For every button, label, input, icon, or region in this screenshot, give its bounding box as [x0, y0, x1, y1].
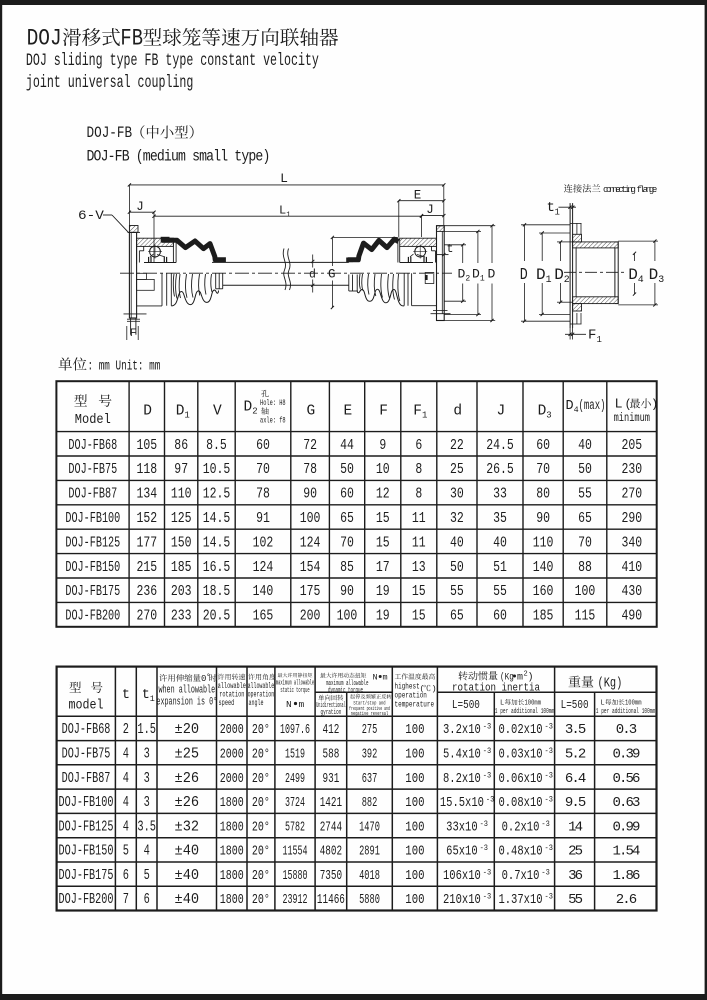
svg-text:1519: 1519 — [285, 747, 305, 763]
svg-text:E: E — [414, 188, 422, 202]
svg-text:20°: 20° — [252, 747, 270, 763]
svg-text:4: 4 — [123, 795, 129, 811]
svg-text:200: 200 — [300, 608, 321, 625]
svg-text:±26: ±26 — [175, 795, 200, 811]
svg-text:185: 185 — [171, 559, 192, 576]
svg-text:L=500: L=500 — [561, 699, 589, 712]
svg-text:97: 97 — [174, 461, 188, 478]
svg-text:20°: 20° — [252, 819, 270, 835]
svg-text:3.2x10: 3.2x10 — [443, 722, 481, 738]
svg-text:11554: 11554 — [283, 844, 308, 860]
svg-text:-3: -3 — [483, 892, 491, 902]
svg-text:11466: 11466 — [317, 892, 345, 908]
svg-text:9.5: 9.5 — [565, 795, 586, 811]
svg-text:30: 30 — [450, 486, 464, 503]
svg-text:60: 60 — [493, 608, 507, 625]
svg-text:51: 51 — [493, 559, 507, 576]
svg-text:negative reversal: negative reversal — [351, 710, 389, 717]
svg-text:11: 11 — [412, 510, 426, 527]
svg-text:L: L — [615, 398, 623, 413]
svg-text:-3: -3 — [545, 722, 553, 732]
svg-text:100: 100 — [405, 844, 424, 860]
svg-text:0.2x10: 0.2x10 — [502, 819, 540, 835]
svg-text:124: 124 — [300, 534, 321, 551]
svg-text:DOJ-FB150: DOJ-FB150 — [65, 559, 120, 576]
svg-text:G: G — [328, 268, 336, 282]
svg-text:36: 36 — [568, 868, 583, 884]
svg-text:55: 55 — [568, 892, 583, 908]
svg-text:speed: speed — [219, 699, 235, 708]
svg-text:3.5: 3.5 — [565, 722, 586, 738]
svg-text:160: 160 — [533, 583, 554, 600]
svg-text:412: 412 — [323, 722, 340, 738]
svg-text:50: 50 — [340, 461, 354, 478]
svg-text:8.5: 8.5 — [206, 437, 227, 454]
svg-text:°: ° — [206, 673, 211, 682]
svg-text:(max): (max) — [579, 399, 606, 414]
svg-text:rotation inertia: rotation inertia — [452, 683, 540, 695]
svg-text:152: 152 — [136, 510, 157, 527]
svg-text:44: 44 — [340, 437, 354, 454]
svg-text:270: 270 — [621, 486, 642, 503]
svg-text:588: 588 — [323, 747, 340, 763]
svg-text:105: 105 — [136, 437, 157, 454]
svg-text:E: E — [343, 404, 351, 420]
svg-text:dynamic torque: dynamic torque — [328, 687, 363, 695]
svg-text:100: 100 — [405, 771, 424, 787]
svg-text:F: F — [588, 328, 596, 344]
svg-text:-3: -3 — [545, 746, 553, 756]
svg-text:60: 60 — [256, 437, 270, 454]
svg-text:1800: 1800 — [220, 844, 244, 860]
svg-text:14: 14 — [568, 819, 583, 835]
svg-text:3724: 3724 — [285, 795, 305, 811]
svg-text:-3: -3 — [486, 795, 494, 805]
svg-text:m: m — [383, 673, 388, 683]
svg-text:DOJ sliding type FB type const: DOJ sliding type FB type constant veloci… — [26, 51, 319, 71]
svg-text:±40: ±40 — [175, 868, 200, 884]
svg-text:Model: Model — [75, 412, 111, 428]
svg-text:9: 9 — [379, 437, 386, 454]
svg-text:88: 88 — [578, 559, 592, 576]
svg-text:±20: ±20 — [175, 722, 200, 738]
svg-text:L: L — [280, 171, 288, 186]
svg-text:0.99: 0.99 — [612, 819, 640, 835]
svg-text:100mm: 100mm — [625, 700, 642, 708]
svg-text:D: D — [143, 404, 151, 420]
svg-text:177: 177 — [136, 534, 157, 551]
svg-text:430: 430 — [621, 583, 642, 600]
svg-text:1.5: 1.5 — [137, 722, 156, 738]
svg-text:8.2x10: 8.2x10 — [443, 771, 481, 787]
svg-text:d: d — [309, 269, 316, 282]
svg-text:72: 72 — [303, 437, 317, 454]
svg-text:5.2: 5.2 — [565, 747, 586, 763]
svg-text:4: 4 — [123, 819, 129, 835]
svg-text:33: 33 — [493, 486, 507, 503]
svg-text:-3: -3 — [483, 770, 491, 780]
svg-text:65: 65 — [450, 608, 464, 625]
svg-text:1 per additional 100mm: 1 per additional 100mm — [596, 708, 655, 716]
svg-text:8: 8 — [415, 486, 422, 503]
svg-text:14.5: 14.5 — [203, 534, 231, 551]
svg-text:175: 175 — [300, 583, 321, 600]
svg-text:N: N — [373, 673, 378, 683]
svg-text:0.02x10: 0.02x10 — [498, 722, 542, 738]
svg-text:L: L — [500, 700, 504, 708]
svg-text:11: 11 — [412, 534, 426, 551]
svg-text:60: 60 — [340, 486, 354, 503]
svg-text:DOJ-FB75: DOJ-FB75 — [68, 461, 117, 478]
svg-text:1421: 1421 — [320, 795, 342, 811]
svg-text:DOJ-FB87: DOJ-FB87 — [62, 771, 111, 787]
svg-text:154: 154 — [300, 559, 321, 576]
svg-text:DOJ-FB200: DOJ-FB200 — [59, 892, 114, 908]
svg-text:65x10: 65x10 — [446, 844, 478, 860]
svg-text:233: 233 — [171, 608, 192, 625]
svg-text:100: 100 — [575, 583, 596, 600]
svg-text:15: 15 — [376, 510, 390, 527]
svg-text:1.37x10: 1.37x10 — [498, 892, 542, 908]
svg-text:215: 215 — [136, 559, 157, 576]
svg-text:DOJ-FB100: DOJ-FB100 — [59, 795, 114, 811]
svg-text:D: D — [520, 265, 528, 284]
svg-text:DOJ-FB150: DOJ-FB150 — [59, 844, 114, 860]
svg-text:-3: -3 — [483, 722, 491, 732]
svg-text:70: 70 — [536, 461, 550, 478]
svg-text:125: 125 — [171, 510, 192, 527]
svg-text:connecting flange: connecting flange — [603, 185, 657, 195]
svg-text:100: 100 — [405, 868, 424, 884]
svg-text:5: 5 — [144, 868, 150, 884]
svg-text:26.5: 26.5 — [486, 461, 514, 478]
svg-text:0.63: 0.63 — [612, 795, 640, 811]
svg-text:70: 70 — [256, 461, 270, 478]
svg-text:-3: -3 — [541, 867, 549, 877]
svg-text:25: 25 — [450, 461, 464, 478]
svg-text:3: 3 — [144, 795, 150, 811]
svg-text:275: 275 — [362, 722, 378, 738]
svg-text:10.5: 10.5 — [203, 461, 231, 478]
svg-text:2: 2 — [123, 722, 129, 738]
svg-text:100: 100 — [300, 510, 321, 527]
svg-text:axle: f8: axle: f8 — [260, 416, 286, 426]
svg-text:90: 90 — [303, 486, 317, 503]
svg-text:230: 230 — [621, 461, 642, 478]
svg-text:2000: 2000 — [220, 722, 244, 738]
svg-text:8: 8 — [415, 461, 422, 478]
svg-text:5880: 5880 — [359, 892, 380, 908]
svg-text:80: 80 — [536, 486, 550, 503]
svg-text:DOJ-FB68: DOJ-FB68 — [68, 437, 117, 454]
svg-text:12: 12 — [376, 486, 390, 503]
svg-text:40: 40 — [493, 534, 507, 551]
svg-text:5.4x10: 5.4x10 — [443, 747, 481, 763]
svg-text:2000: 2000 — [220, 771, 244, 787]
svg-text:7350: 7350 — [320, 868, 342, 884]
svg-text:165: 165 — [253, 608, 274, 625]
svg-text:20°: 20° — [252, 892, 270, 908]
svg-text:6: 6 — [415, 437, 422, 454]
svg-text:15: 15 — [412, 583, 426, 600]
svg-text:118: 118 — [136, 461, 157, 478]
svg-text:0.39: 0.39 — [612, 747, 640, 763]
svg-text:J: J — [136, 200, 144, 214]
svg-text:102: 102 — [253, 534, 274, 551]
svg-text:N: N — [286, 699, 292, 710]
svg-text:205: 205 — [621, 437, 642, 454]
svg-text:2000: 2000 — [220, 747, 244, 763]
svg-text:4: 4 — [123, 747, 129, 763]
svg-text:3.5: 3.5 — [137, 819, 156, 835]
svg-text:): ) — [432, 684, 437, 694]
svg-text:35: 35 — [493, 510, 507, 527]
svg-text:DOJ-FB175: DOJ-FB175 — [65, 583, 120, 600]
svg-text:-3: -3 — [545, 843, 553, 853]
svg-text:joint universal coupling: joint universal coupling — [26, 73, 194, 93]
svg-text:DOJ-FB75: DOJ-FB75 — [62, 747, 111, 763]
svg-text:55: 55 — [493, 583, 507, 600]
svg-text:55: 55 — [450, 583, 464, 600]
svg-text:50: 50 — [450, 559, 464, 576]
svg-text:6-V: 6-V — [78, 208, 104, 223]
svg-text:gyration: gyration — [321, 709, 342, 717]
svg-text:1: 1 — [555, 208, 560, 218]
svg-text:15880: 15880 — [283, 868, 308, 884]
svg-text:d: d — [453, 404, 461, 420]
svg-text:17: 17 — [376, 559, 390, 576]
svg-text:0.7x10: 0.7x10 — [502, 868, 540, 884]
svg-text:106x10: 106x10 — [443, 868, 481, 884]
svg-text:19: 19 — [376, 608, 390, 625]
svg-text:): ) — [651, 398, 658, 412]
svg-text:19: 19 — [376, 583, 390, 600]
svg-text:0.06x10: 0.06x10 — [498, 771, 542, 787]
svg-text:Hole: H8: Hole: H8 — [260, 398, 286, 408]
svg-text:-3: -3 — [483, 867, 491, 877]
svg-text:when allowable: when allowable — [158, 685, 215, 697]
svg-text:1.54: 1.54 — [612, 844, 640, 860]
svg-text:100: 100 — [405, 795, 424, 811]
svg-text:-3: -3 — [545, 892, 553, 902]
svg-text:expansion is 0°: expansion is 0° — [156, 697, 217, 709]
svg-text:4: 4 — [144, 844, 150, 860]
svg-text:20°: 20° — [252, 868, 270, 884]
svg-text:13: 13 — [412, 559, 426, 576]
svg-text:23912: 23912 — [283, 892, 308, 908]
svg-text:1: 1 — [597, 335, 602, 345]
svg-text:6: 6 — [144, 892, 150, 908]
svg-text:124: 124 — [253, 559, 274, 576]
svg-text:1800: 1800 — [220, 795, 244, 811]
svg-text:±26: ±26 — [175, 771, 200, 787]
svg-text:20°: 20° — [252, 771, 270, 787]
svg-text:86: 86 — [174, 437, 188, 454]
svg-text:4: 4 — [123, 771, 129, 787]
svg-text:-3: -3 — [545, 770, 553, 780]
svg-text:60: 60 — [536, 437, 550, 454]
svg-text:DOJ-FB175: DOJ-FB175 — [59, 868, 114, 884]
svg-text:2744: 2744 — [320, 819, 342, 835]
svg-text:t: t — [122, 688, 130, 703]
svg-text:33x10: 33x10 — [446, 819, 478, 835]
svg-text:1.86: 1.86 — [612, 868, 640, 884]
svg-text:J: J — [426, 203, 434, 217]
svg-text:55: 55 — [578, 486, 592, 503]
svg-text:203: 203 — [171, 583, 192, 600]
svg-text:70: 70 — [340, 534, 354, 551]
svg-text:270: 270 — [136, 608, 157, 625]
svg-text:10: 10 — [376, 461, 390, 478]
svg-text:5: 5 — [123, 844, 129, 860]
svg-text:-3: -3 — [545, 795, 553, 805]
svg-text:DOJ-FB125: DOJ-FB125 — [65, 534, 120, 551]
svg-text:20°: 20° — [252, 722, 270, 738]
svg-text:931: 931 — [323, 771, 340, 787]
svg-text:2499: 2499 — [285, 771, 305, 787]
svg-text:110: 110 — [533, 534, 554, 551]
svg-text:340: 340 — [621, 534, 642, 551]
svg-text:50: 50 — [578, 461, 592, 478]
svg-text:±40: ±40 — [175, 844, 200, 860]
svg-text:882: 882 — [362, 795, 378, 811]
svg-text:90: 90 — [340, 583, 354, 600]
svg-text:2891: 2891 — [359, 844, 380, 860]
svg-text:110: 110 — [171, 486, 192, 503]
svg-text:15: 15 — [376, 534, 390, 551]
svg-text:4018: 4018 — [359, 868, 380, 884]
svg-text:14.5: 14.5 — [203, 510, 231, 527]
svg-text:0.3: 0.3 — [616, 722, 637, 738]
svg-text:210x10: 210x10 — [443, 892, 481, 908]
svg-text:12.5: 12.5 — [203, 486, 231, 503]
svg-text:-3: -3 — [483, 746, 491, 756]
svg-text:140: 140 — [533, 559, 554, 576]
svg-text:0.48x10: 0.48x10 — [498, 844, 542, 860]
svg-text:(Kg): (Kg) — [598, 677, 623, 692]
svg-text:91: 91 — [256, 510, 270, 527]
svg-text:±40: ±40 — [175, 892, 200, 908]
svg-text:DOJ: DOJ — [27, 26, 62, 52]
svg-text:15: 15 — [412, 608, 426, 625]
svg-text:: mm Unit: mm: : mm Unit: mm — [88, 359, 161, 375]
svg-text:-3: -3 — [480, 819, 488, 829]
svg-text:model: model — [69, 699, 104, 714]
svg-text:22: 22 — [450, 437, 464, 454]
svg-text:78: 78 — [303, 461, 317, 478]
svg-text:290: 290 — [621, 510, 642, 527]
svg-text:D: D — [488, 267, 496, 282]
svg-text:65: 65 — [340, 510, 354, 527]
svg-text:16.5: 16.5 — [203, 559, 231, 576]
svg-text:DOJ-FB200: DOJ-FB200 — [65, 608, 120, 625]
svg-text:100: 100 — [405, 819, 424, 835]
svg-text:DOJ-FB68: DOJ-FB68 — [62, 722, 111, 738]
svg-text:0.08x10: 0.08x10 — [498, 795, 542, 811]
svg-text:78: 78 — [256, 486, 270, 503]
svg-text:85: 85 — [340, 559, 354, 576]
svg-text:5782: 5782 — [285, 819, 305, 835]
svg-text:F: F — [130, 328, 137, 340]
svg-text:1800: 1800 — [220, 819, 244, 835]
svg-text:DOJ-FB (medium small type): DOJ-FB (medium small type) — [87, 148, 270, 166]
svg-text:65: 65 — [578, 510, 592, 527]
svg-text:90: 90 — [536, 510, 550, 527]
svg-text:100mm: 100mm — [525, 700, 542, 708]
svg-text:2.6: 2.6 — [616, 892, 637, 908]
svg-text:J: J — [496, 404, 503, 420]
svg-text:3: 3 — [144, 771, 150, 787]
svg-text:1097.6: 1097.6 — [280, 722, 310, 738]
svg-text:1800: 1800 — [220, 868, 244, 884]
svg-text:0.56: 0.56 — [612, 771, 640, 787]
svg-text:410: 410 — [621, 559, 642, 576]
svg-text:0.03x10: 0.03x10 — [498, 747, 542, 763]
svg-text:115: 115 — [575, 608, 596, 625]
svg-text:angle: angle — [249, 699, 264, 708]
svg-text:1 per additional 100mm: 1 per additional 100mm — [495, 708, 554, 716]
svg-text:40: 40 — [450, 534, 464, 551]
svg-text:15.5x10: 15.5x10 — [440, 795, 484, 811]
svg-text:100: 100 — [405, 722, 424, 738]
svg-text:25: 25 — [568, 844, 583, 860]
svg-text:(: ( — [625, 398, 632, 412]
svg-text:±32: ±32 — [175, 819, 200, 835]
svg-text:32: 32 — [450, 510, 464, 527]
svg-text:637: 637 — [362, 771, 378, 787]
svg-text:150: 150 — [171, 534, 192, 551]
svg-text:G: G — [307, 404, 315, 420]
svg-text:20°: 20° — [252, 795, 270, 811]
svg-text:392: 392 — [362, 747, 378, 763]
svg-text:7: 7 — [123, 892, 129, 908]
svg-text:temperature: temperature — [395, 700, 435, 710]
svg-text:100: 100 — [405, 892, 424, 908]
svg-text:4802: 4802 — [320, 844, 342, 860]
svg-text:L=500: L=500 — [452, 699, 480, 712]
svg-text:140: 140 — [253, 583, 274, 600]
svg-text:static torque: static torque — [280, 687, 309, 695]
svg-text:3: 3 — [144, 747, 150, 763]
svg-text:70: 70 — [578, 534, 592, 551]
svg-text:±25: ±25 — [175, 747, 200, 763]
svg-text:-3: -3 — [480, 843, 488, 853]
svg-text:100: 100 — [405, 747, 424, 763]
svg-text:DOJ-FB: DOJ-FB — [87, 124, 133, 142]
svg-text:DOJ-FB87: DOJ-FB87 — [68, 486, 117, 503]
svg-text:18.5: 18.5 — [203, 583, 231, 600]
svg-text:minimum: minimum — [614, 412, 650, 425]
svg-text:DOJ-FB100: DOJ-FB100 — [65, 510, 120, 527]
svg-text:L: L — [601, 700, 605, 708]
svg-text:134: 134 — [136, 486, 157, 503]
svg-text:F: F — [379, 404, 387, 420]
svg-text:1800: 1800 — [220, 892, 244, 908]
svg-text:m: m — [299, 699, 305, 710]
svg-text:490: 490 — [621, 608, 642, 625]
svg-text:1470: 1470 — [359, 819, 380, 835]
svg-text:DOJ-FB125: DOJ-FB125 — [59, 819, 114, 835]
svg-text:6: 6 — [123, 868, 129, 884]
svg-text:185: 185 — [533, 608, 554, 625]
svg-text:20°: 20° — [252, 844, 270, 860]
svg-text:236: 236 — [136, 583, 157, 600]
svg-text:6.4: 6.4 — [565, 771, 586, 787]
svg-text:20.5: 20.5 — [203, 608, 231, 625]
svg-text:24.5: 24.5 — [486, 437, 514, 454]
svg-text:100: 100 — [337, 608, 358, 625]
svg-text:-3: -3 — [541, 819, 549, 829]
